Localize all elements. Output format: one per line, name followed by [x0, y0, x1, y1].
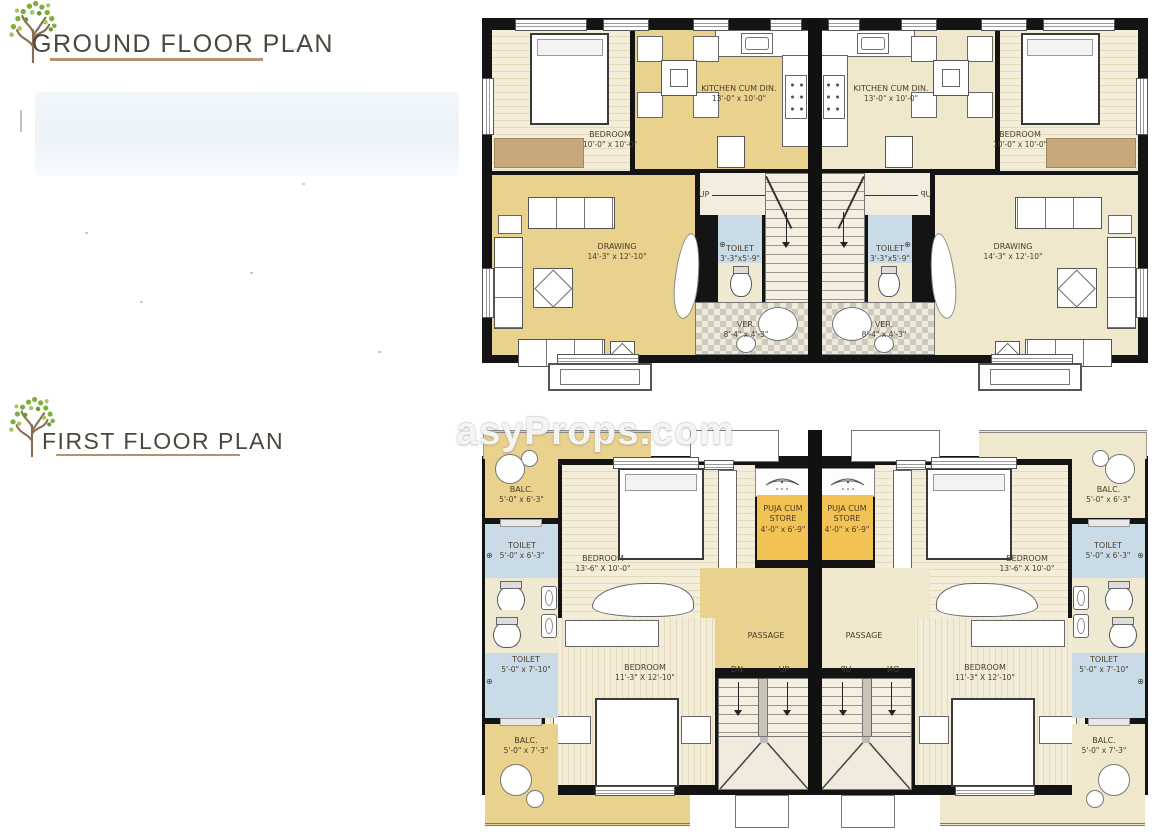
speck — [250, 272, 253, 274]
floor-plan-sheet: GROUND FLOOR PLAN FIRST FLOOR PLAN — [0, 0, 1160, 832]
room-label-puja: PUJA CUM STORE4'-0" x 6'-9" — [759, 504, 807, 535]
room-label-balcony-top: BALC.5'-0" x 6'-3" — [1081, 485, 1136, 505]
room-label-verandah: VER.8'-4" x 4'-3" — [718, 320, 774, 340]
speck — [85, 232, 88, 234]
room-label-bedroom-top: BEDROOM13'-6" X 10'-0" — [994, 554, 1060, 574]
up-label: UP — [773, 665, 795, 674]
planter-icon — [500, 764, 532, 796]
room-label-kitchen: KITCHEN CUM DIN.13'-0" x 10'-0" — [700, 84, 778, 104]
up-label: UP — [694, 190, 714, 199]
room-label-drawing: DRAWING14'-3" x 12'-10" — [980, 242, 1046, 262]
room-label-toilet-top: TOILET5'-0" x 6'-3" — [496, 541, 548, 561]
room-label-balcony-bottom: BALC.5'-0" x 7'-3" — [1076, 736, 1132, 756]
window — [482, 78, 494, 135]
dn-label: DN — [882, 665, 904, 674]
title-underline — [50, 58, 263, 61]
room-label-bedroom-top: BEDROOM13'-6" X 10'-0" — [570, 554, 636, 574]
room-label-passage: PASSAGE — [836, 631, 892, 641]
window — [482, 268, 494, 318]
ff-balcony-top — [485, 448, 558, 518]
planter-icon — [526, 790, 544, 808]
title-underline — [56, 454, 240, 456]
ff-balcony-bottom-strip — [485, 795, 690, 826]
dn-label: DN — [726, 665, 748, 674]
ground-floor-labels: BEDROOM10'-0" x 10'-0" KITCHEN CUM DIN.1… — [822, 18, 1148, 390]
room-label-bedroom-bottom: BEDROOM11'-3" X 12'-10" — [952, 663, 1018, 683]
speck — [140, 301, 143, 303]
speck — [378, 351, 381, 353]
ground-floor-labels: BEDROOM10'-0" x 10'-0" KITCHEN CUM DIN.1… — [482, 18, 808, 390]
room-label-toilet-bottom: TOILET5'-0" x 7'-10" — [1076, 655, 1132, 675]
room-label-bedroom: BEDROOM10'-0" x 10'-0" — [988, 130, 1052, 150]
door-threshold — [500, 519, 542, 527]
door-threshold — [500, 718, 542, 726]
room-label-toilet: TOILET3'-3"x5'-9" — [869, 244, 911, 264]
first-floor-title: FIRST FLOOR PLAN — [42, 428, 284, 455]
party-wall — [808, 430, 822, 795]
room-label-toilet-bottom: TOILET5'-0" x 7'-10" — [498, 655, 554, 675]
room-label-bedroom: BEDROOM10'-0" x 10'-0" — [578, 130, 642, 150]
room-label-balcony-bottom: BALC.5'-0" x 7'-3" — [498, 736, 554, 756]
window — [693, 19, 729, 31]
window — [595, 786, 675, 796]
window — [557, 354, 639, 364]
window — [613, 457, 699, 469]
up-label: UP — [835, 665, 857, 674]
room-label-bedroom-bottom: BEDROOM11'-3" X 12'-10" — [612, 663, 678, 683]
ground-floor-plan: ⊕ BEDROOM10'-0" x 10'-0" KITCHEN CUM DIN… — [482, 18, 1148, 390]
window — [515, 19, 587, 31]
speck — [302, 183, 305, 185]
party-wall — [808, 18, 822, 363]
up-label: UP — [916, 190, 936, 199]
speck — [20, 110, 22, 132]
room-label-toilet: TOILET3'-3"x5'-9" — [719, 244, 761, 264]
porch-roof — [735, 795, 789, 828]
room-label-drawing: DRAWING14'-3" x 12'-10" — [584, 242, 650, 262]
room-label-toilet-top: TOILET5'-0" x 6'-3" — [1082, 541, 1134, 561]
window — [603, 19, 649, 31]
room-label-puja: PUJA CUM STORE4'-0" x 6'-9" — [823, 504, 871, 535]
first-floor-plan: ⊕ — [482, 428, 1148, 828]
erased-watermark-artifact — [35, 92, 459, 176]
room-label-passage: PASSAGE — [738, 631, 794, 641]
ground-floor-title: GROUND FLOOR PLAN — [32, 30, 334, 59]
room-label-verandah: VER.8'-4" x 4'-3" — [856, 320, 912, 340]
window — [704, 460, 734, 470]
room-label-kitchen: KITCHEN CUM DIN.13'-0" x 10'-0" — [852, 84, 930, 104]
room-label-balcony-top: BALC.5'-0" x 6'-3" — [494, 485, 549, 505]
first-floor-labels: BALC.5'-0" x 6'-3" TOILET5'-0" x 6'-3" B… — [822, 428, 1148, 828]
window — [770, 19, 802, 31]
watermark: asyProps.com — [456, 410, 735, 454]
